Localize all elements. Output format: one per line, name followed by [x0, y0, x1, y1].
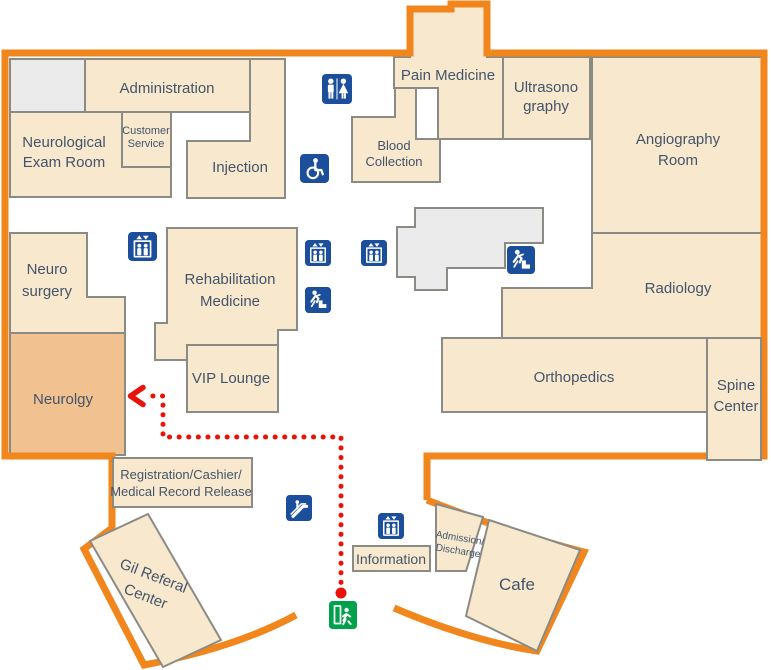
- route-start-dot: [336, 588, 347, 599]
- label-information: Information: [356, 551, 426, 567]
- label-blood-collection-2: Collection: [365, 154, 422, 169]
- label-vip-lounge: VIP Lounge: [192, 370, 270, 387]
- elevator-icon: [128, 232, 157, 261]
- label-radiology: Radiology: [645, 280, 712, 297]
- label-orthopedics: Orthopedics: [534, 369, 615, 386]
- label-customer-service-1: Customer: [122, 125, 170, 137]
- emergency-stairs-icon: [507, 246, 535, 274]
- floor-map-svg: Administration Neurological Exam Room Cu…: [0, 0, 771, 670]
- emergency-stairs-icon: [305, 287, 331, 313]
- label-blood-collection-1: Blood: [377, 138, 410, 153]
- label-rehabilitation-1: Rehabilitation: [185, 271, 276, 288]
- label-registration-1: Registration/Cashier/: [120, 467, 242, 482]
- elevator-icon: [378, 513, 404, 539]
- label-neurological-exam-2: Exam Room: [23, 154, 106, 171]
- escalator-icon: [286, 495, 312, 521]
- label-ultrasonography-2: graphy: [523, 98, 569, 115]
- label-angiography-2: Room: [658, 152, 698, 169]
- elevator-icon: [361, 240, 387, 266]
- label-neuro-surgery-1: Neuro: [27, 261, 68, 278]
- label-administration: Administration: [119, 80, 214, 97]
- label-spine-center-1: Spine: [717, 377, 755, 394]
- restroom-icon: [322, 74, 352, 104]
- emergency-exit-icon: [329, 601, 357, 629]
- room-registration: [113, 458, 252, 507]
- label-registration-2: Medical Record Release: [110, 484, 252, 499]
- label-neurology: Neurolgy: [33, 391, 94, 408]
- rooms-layer: [10, 4, 763, 455]
- label-injection: Injection: [212, 159, 268, 176]
- label-pain-medicine: Pain Medicine: [401, 67, 495, 84]
- label-rehabilitation-2: Medicine: [200, 293, 260, 310]
- elevator-icon: [305, 240, 331, 266]
- label-angiography-1: Angiography: [636, 131, 721, 148]
- label-neurological-exam-1: Neurological: [22, 134, 105, 151]
- label-ultrasonography-1: Ultrasono: [514, 79, 578, 96]
- room-unlabeled-gray: [10, 59, 85, 112]
- hospital-floor-map: Administration Neurological Exam Room Cu…: [0, 0, 771, 670]
- label-neuro-surgery-2: surgery: [22, 283, 73, 300]
- label-cafe: Cafe: [499, 575, 535, 594]
- room-radiology: [502, 233, 763, 338]
- label-spine-center-2: Center: [713, 398, 758, 415]
- wheelchair-accessible-icon: [300, 154, 329, 183]
- route-arrowhead: [131, 388, 144, 405]
- label-customer-service-2: Service: [128, 138, 165, 150]
